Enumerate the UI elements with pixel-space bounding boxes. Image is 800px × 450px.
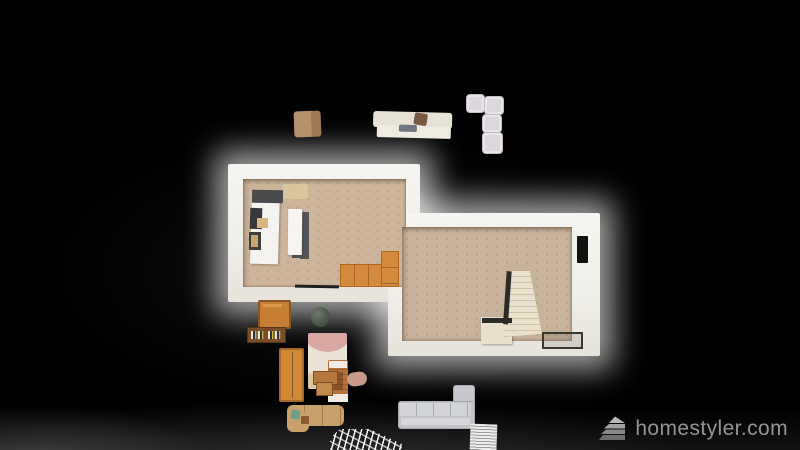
range-hood	[252, 190, 283, 204]
gray-blanket	[399, 125, 417, 132]
bookshelf	[247, 327, 286, 343]
stair-railing-horizontal	[482, 318, 512, 323]
gray-sectional-sofa	[398, 385, 473, 427]
cream-sofa	[373, 109, 455, 142]
potted-plant	[311, 307, 330, 327]
cutting-board	[257, 218, 268, 228]
wooden-cabinet	[258, 300, 291, 329]
lined-panel	[470, 424, 498, 450]
bed-pillow	[329, 361, 347, 368]
modular-sofa-block	[466, 94, 485, 113]
modular-sofa-block	[484, 96, 504, 115]
teal-chair	[290, 409, 300, 419]
dark-door	[577, 236, 588, 263]
brown-pillow	[413, 112, 428, 126]
sectional-front-edge	[401, 418, 470, 425]
entry-mat	[283, 184, 308, 199]
wardrobe	[279, 348, 304, 402]
sectional-cushions	[400, 403, 471, 416]
stool	[316, 382, 333, 396]
homestyler-logo-icon	[598, 415, 626, 442]
orange-cabinet-vertical	[381, 251, 399, 287]
kitchen-island	[288, 209, 302, 255]
modular-sofa-block	[482, 114, 502, 133]
book-row	[268, 331, 281, 339]
orange-cabinet-horizontal	[340, 264, 386, 287]
floorplan-canvas: homestyler.com	[0, 0, 800, 450]
book-row	[251, 331, 264, 339]
watermark-text: homestyler.com	[635, 417, 788, 441]
brown-box	[301, 416, 309, 424]
framed-floor-mat	[542, 332, 583, 349]
homestyler-watermark: homestyler.com	[598, 415, 788, 442]
modular-sofa-block	[482, 132, 503, 154]
kitchen-sink	[249, 232, 261, 250]
fabric-cube-chair	[294, 111, 322, 138]
